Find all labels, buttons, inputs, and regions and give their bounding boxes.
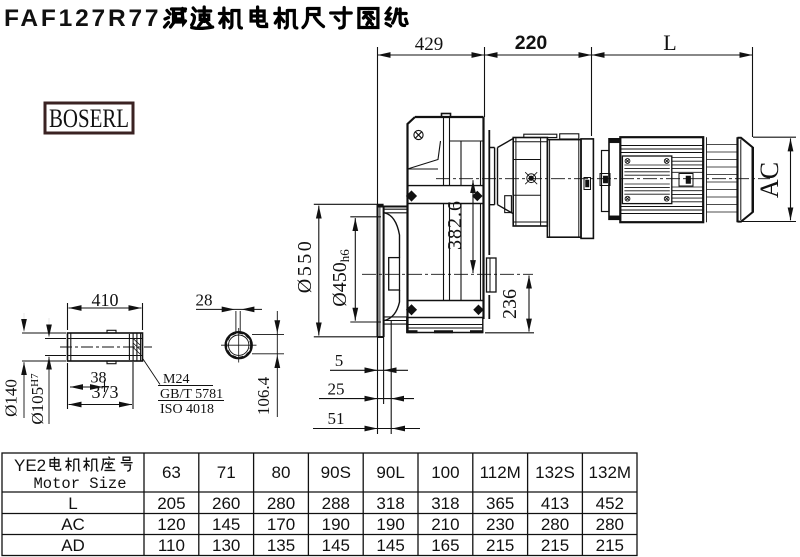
svg-text:AC: AC bbox=[61, 515, 85, 534]
svg-text:413: 413 bbox=[541, 494, 569, 513]
svg-text:80: 80 bbox=[272, 463, 291, 482]
svg-text:25: 25 bbox=[328, 380, 345, 399]
svg-text:429: 429 bbox=[415, 34, 444, 55]
svg-text:63: 63 bbox=[162, 463, 181, 482]
svg-text:Ø550: Ø550 bbox=[294, 239, 316, 293]
svg-text:51: 51 bbox=[328, 409, 345, 428]
svg-text:L: L bbox=[68, 494, 77, 513]
svg-text:L: L bbox=[663, 30, 676, 55]
svg-text:220: 220 bbox=[515, 32, 548, 54]
svg-text:ISO 4018: ISO 4018 bbox=[160, 402, 214, 417]
svg-text:28: 28 bbox=[196, 291, 213, 310]
svg-text:100: 100 bbox=[431, 463, 459, 482]
svg-text:AC: AC bbox=[755, 162, 784, 198]
svg-text:382.6: 382.6 bbox=[444, 200, 466, 250]
svg-text:215: 215 bbox=[486, 536, 514, 555]
svg-text:215: 215 bbox=[596, 536, 624, 555]
svg-text:5: 5 bbox=[335, 351, 344, 370]
svg-text:Ø140: Ø140 bbox=[2, 379, 21, 417]
svg-text:236: 236 bbox=[499, 289, 521, 319]
svg-text:71: 71 bbox=[217, 463, 236, 482]
svg-text:Motor Size: Motor Size bbox=[33, 475, 126, 493]
svg-text:280: 280 bbox=[541, 515, 569, 534]
svg-text:190: 190 bbox=[376, 515, 404, 534]
svg-text:135: 135 bbox=[267, 536, 295, 555]
svg-text:230: 230 bbox=[486, 515, 514, 534]
svg-text:M24: M24 bbox=[163, 372, 189, 387]
svg-text:145: 145 bbox=[322, 536, 350, 555]
svg-text:110: 110 bbox=[158, 536, 185, 555]
svg-text:288: 288 bbox=[322, 494, 350, 513]
svg-text:210: 210 bbox=[431, 515, 459, 534]
svg-text:410: 410 bbox=[92, 290, 119, 310]
svg-text:90L: 90L bbox=[376, 463, 404, 482]
svg-text:145: 145 bbox=[212, 515, 240, 534]
svg-text:165: 165 bbox=[431, 536, 459, 555]
svg-text:106.4: 106.4 bbox=[254, 376, 273, 415]
svg-text:318: 318 bbox=[376, 494, 404, 513]
svg-text:215: 215 bbox=[541, 536, 569, 555]
svg-text:365: 365 bbox=[486, 494, 514, 513]
svg-text:112M: 112M bbox=[480, 463, 521, 482]
svg-text:318: 318 bbox=[431, 494, 459, 513]
svg-text:BOSERL: BOSERL bbox=[49, 104, 129, 133]
svg-text:260: 260 bbox=[212, 494, 240, 513]
svg-text:170: 170 bbox=[267, 515, 295, 534]
svg-text:452: 452 bbox=[596, 494, 624, 513]
svg-text:130: 130 bbox=[212, 536, 240, 555]
svg-text:132S: 132S bbox=[535, 463, 575, 482]
svg-text:FAF127R77: FAF127R77 bbox=[4, 5, 161, 32]
svg-text:373: 373 bbox=[92, 382, 119, 402]
svg-text:280: 280 bbox=[596, 515, 624, 534]
svg-text:132M: 132M bbox=[589, 463, 632, 482]
svg-text:205: 205 bbox=[157, 494, 185, 513]
svg-text:90S: 90S bbox=[321, 463, 351, 482]
svg-text:280: 280 bbox=[267, 494, 295, 513]
svg-text:145: 145 bbox=[376, 536, 404, 555]
svg-text:120: 120 bbox=[157, 515, 185, 534]
svg-text:190: 190 bbox=[322, 515, 350, 534]
svg-text:YE2: YE2 bbox=[14, 456, 46, 475]
svg-text:GB/T 5781: GB/T 5781 bbox=[160, 387, 223, 402]
svg-text:AD: AD bbox=[61, 536, 85, 555]
